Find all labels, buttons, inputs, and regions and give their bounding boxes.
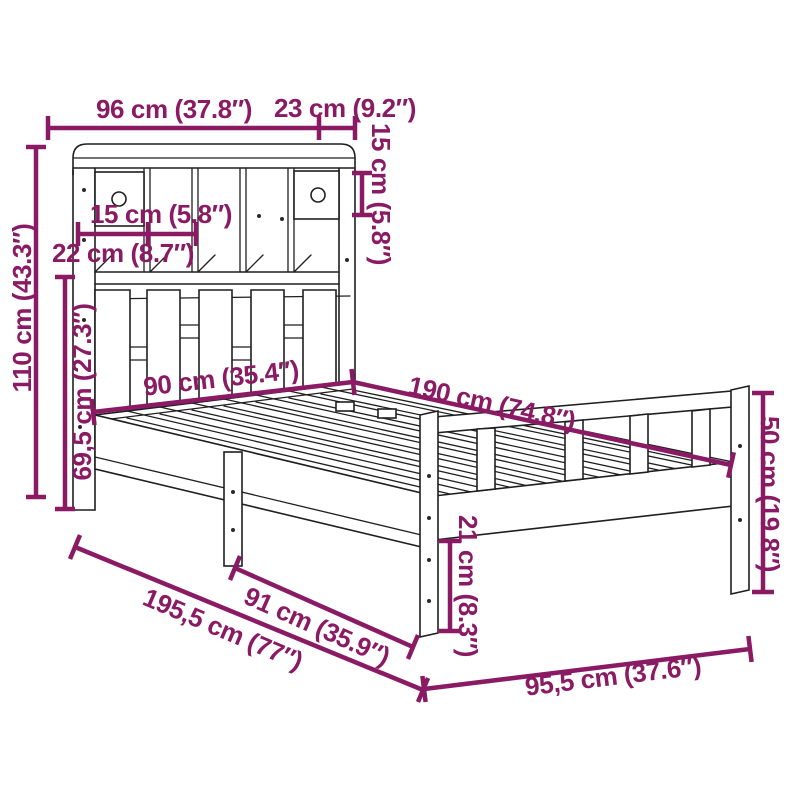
drawer-right [294,171,339,219]
foot-post-far [731,386,749,594]
near-side-rail [95,415,434,550]
dim-label-footboard-height: 50 cm (19.8″) [757,416,783,572]
dim-label-drawer-compartment-width: 22 cm (8.7″) [52,240,194,266]
dim-label-bookcase-top-width: 96 cm (37.8″) [96,96,252,122]
foot-post-near [420,411,438,637]
dim-label-under-bed-clearance: 21 cm (8.3″) [455,515,481,657]
dim-label-top-shelf-height: 15 cm (5.8″) [368,123,394,265]
dim-label-headboard-lower-height: 69,5 cm (27.3″) [69,303,95,480]
diagram-stage: 96 cm (37.8″) 23 cm (9.2″) 15 cm (5.8″) … [0,0,800,800]
dim-label-headboard-total-height: 110 cm (43.3″) [9,224,35,393]
dim-line-total-length [70,535,428,702]
dim-label-cubby-width: 15 cm (5.8″) [90,201,232,227]
mid-support-leg [224,452,242,566]
dim-label-bookcase-top-depth: 23 cm (9.2″) [274,95,416,121]
